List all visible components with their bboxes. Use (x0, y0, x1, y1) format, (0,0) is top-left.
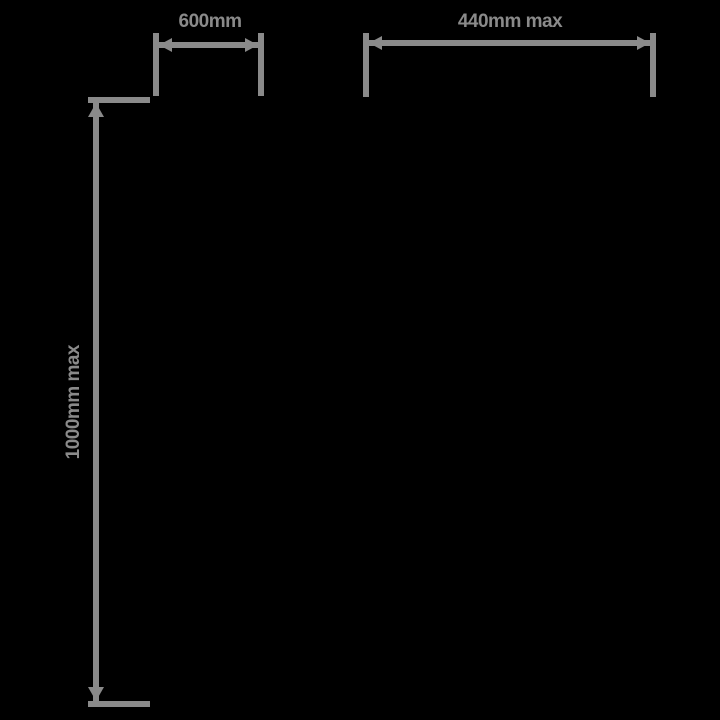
height-dimension-line (93, 103, 99, 701)
top-right-dimension-line (369, 40, 650, 46)
top-left-width-label: 600mm (150, 12, 270, 33)
top-left-dimension-line (159, 42, 258, 48)
top-right-width-label: 440mm max (400, 12, 620, 33)
left-height-label: 1000mm max (63, 345, 85, 459)
top-right-dimension-right-end-bar (650, 33, 656, 97)
arrowhead-down-icon (88, 687, 104, 701)
height-dimension-bottom-tick (88, 701, 150, 707)
arrowhead-left-icon (159, 38, 172, 52)
arrowhead-left-icon (369, 36, 382, 50)
left-height-label-wrapper: 1000mm max (56, 100, 92, 704)
arrowhead-right-icon (637, 36, 650, 50)
arrowhead-up-icon (88, 103, 104, 117)
arrowhead-right-icon (245, 38, 258, 52)
dimension-diagram: 600mm 440mm max 1000mm max (0, 0, 720, 720)
top-left-dimension-right-end-bar (258, 33, 264, 96)
